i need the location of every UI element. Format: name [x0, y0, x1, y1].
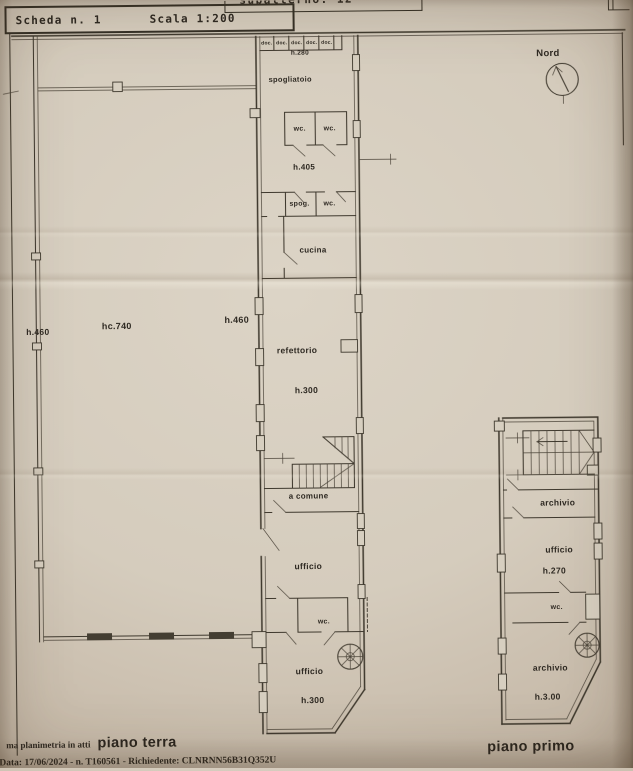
- room-label-doc-1: doc.: [261, 40, 273, 46]
- room-label-archivio-1: archivio: [540, 497, 575, 507]
- dim-label-h300-pp: h.3.00: [535, 691, 561, 701]
- piano-terra-caption: piano terra: [97, 734, 177, 751]
- room-label-a-comune: a comune: [289, 491, 329, 500]
- scale-label: Scala 1:200: [150, 11, 236, 25]
- room-label-wc-mid: wc.: [323, 200, 335, 207]
- room-label-spog: spog.: [289, 201, 309, 208]
- room-label-doc-2: doc.: [276, 40, 288, 46]
- piano-primo-caption: piano primo: [487, 738, 575, 755]
- north-compass: [546, 63, 578, 103]
- dim-label-h300-refettorio: h.300: [295, 385, 318, 395]
- room-label-cucina: cucina: [299, 245, 326, 254]
- room-label-doc-5: doc.: [321, 40, 333, 46]
- subalterno-box-clipped: subalterno: 12: [224, 0, 422, 13]
- outer-boundary-lines: [2, 0, 633, 755]
- room-label-wc-top-2: wc.: [324, 125, 336, 132]
- dim-label-hc740: hc.740: [102, 321, 132, 331]
- room-label-refettorio: refettorio: [277, 345, 317, 355]
- dim-label-h300-ufficio: h.300: [301, 695, 324, 705]
- dim-label-h460-right: h.460: [224, 315, 249, 325]
- room-label-wc-top-1: wc.: [294, 126, 306, 133]
- room-label-doc-3: doc.: [291, 40, 303, 46]
- room-label-wc-pp: wc.: [551, 604, 563, 611]
- courtyard-hall: [29, 34, 262, 642]
- scanned-floorplan-page: { "header": { "scheda": "Scheda n. 1", "…: [0, 0, 633, 768]
- subalterno-text: subalterno: 12: [239, 0, 421, 7]
- room-label-spogliatoio: spogliatoio: [269, 75, 312, 84]
- dim-label-h280: h.280: [291, 50, 309, 57]
- room-label-doc-4: doc.: [306, 40, 318, 46]
- dim-label-h270: h.270: [543, 565, 566, 575]
- room-label-wc-lower: wc.: [318, 618, 330, 625]
- piano-terra-plan: [246, 35, 402, 734]
- scheda-number: Scheda n. 1: [16, 13, 102, 27]
- north-label: Nord: [536, 48, 559, 59]
- scan-content: Scheda n. 1 Scala 1:200 subalterno: 12 N…: [0, 0, 633, 771]
- dim-label-h460-left: h.460: [26, 327, 49, 337]
- dim-label-h405: h.405: [293, 163, 315, 172]
- room-label-archivio-2: archivio: [533, 662, 568, 672]
- room-label-ufficio-2: ufficio: [296, 666, 324, 676]
- room-label-ufficio-1: ufficio: [294, 561, 322, 571]
- room-label-ufficio-pp: ufficio: [545, 544, 573, 554]
- footer-atti-line: ma planimetria in atti piano terra: [6, 734, 177, 752]
- atti-note: ma planimetria in atti: [6, 739, 90, 750]
